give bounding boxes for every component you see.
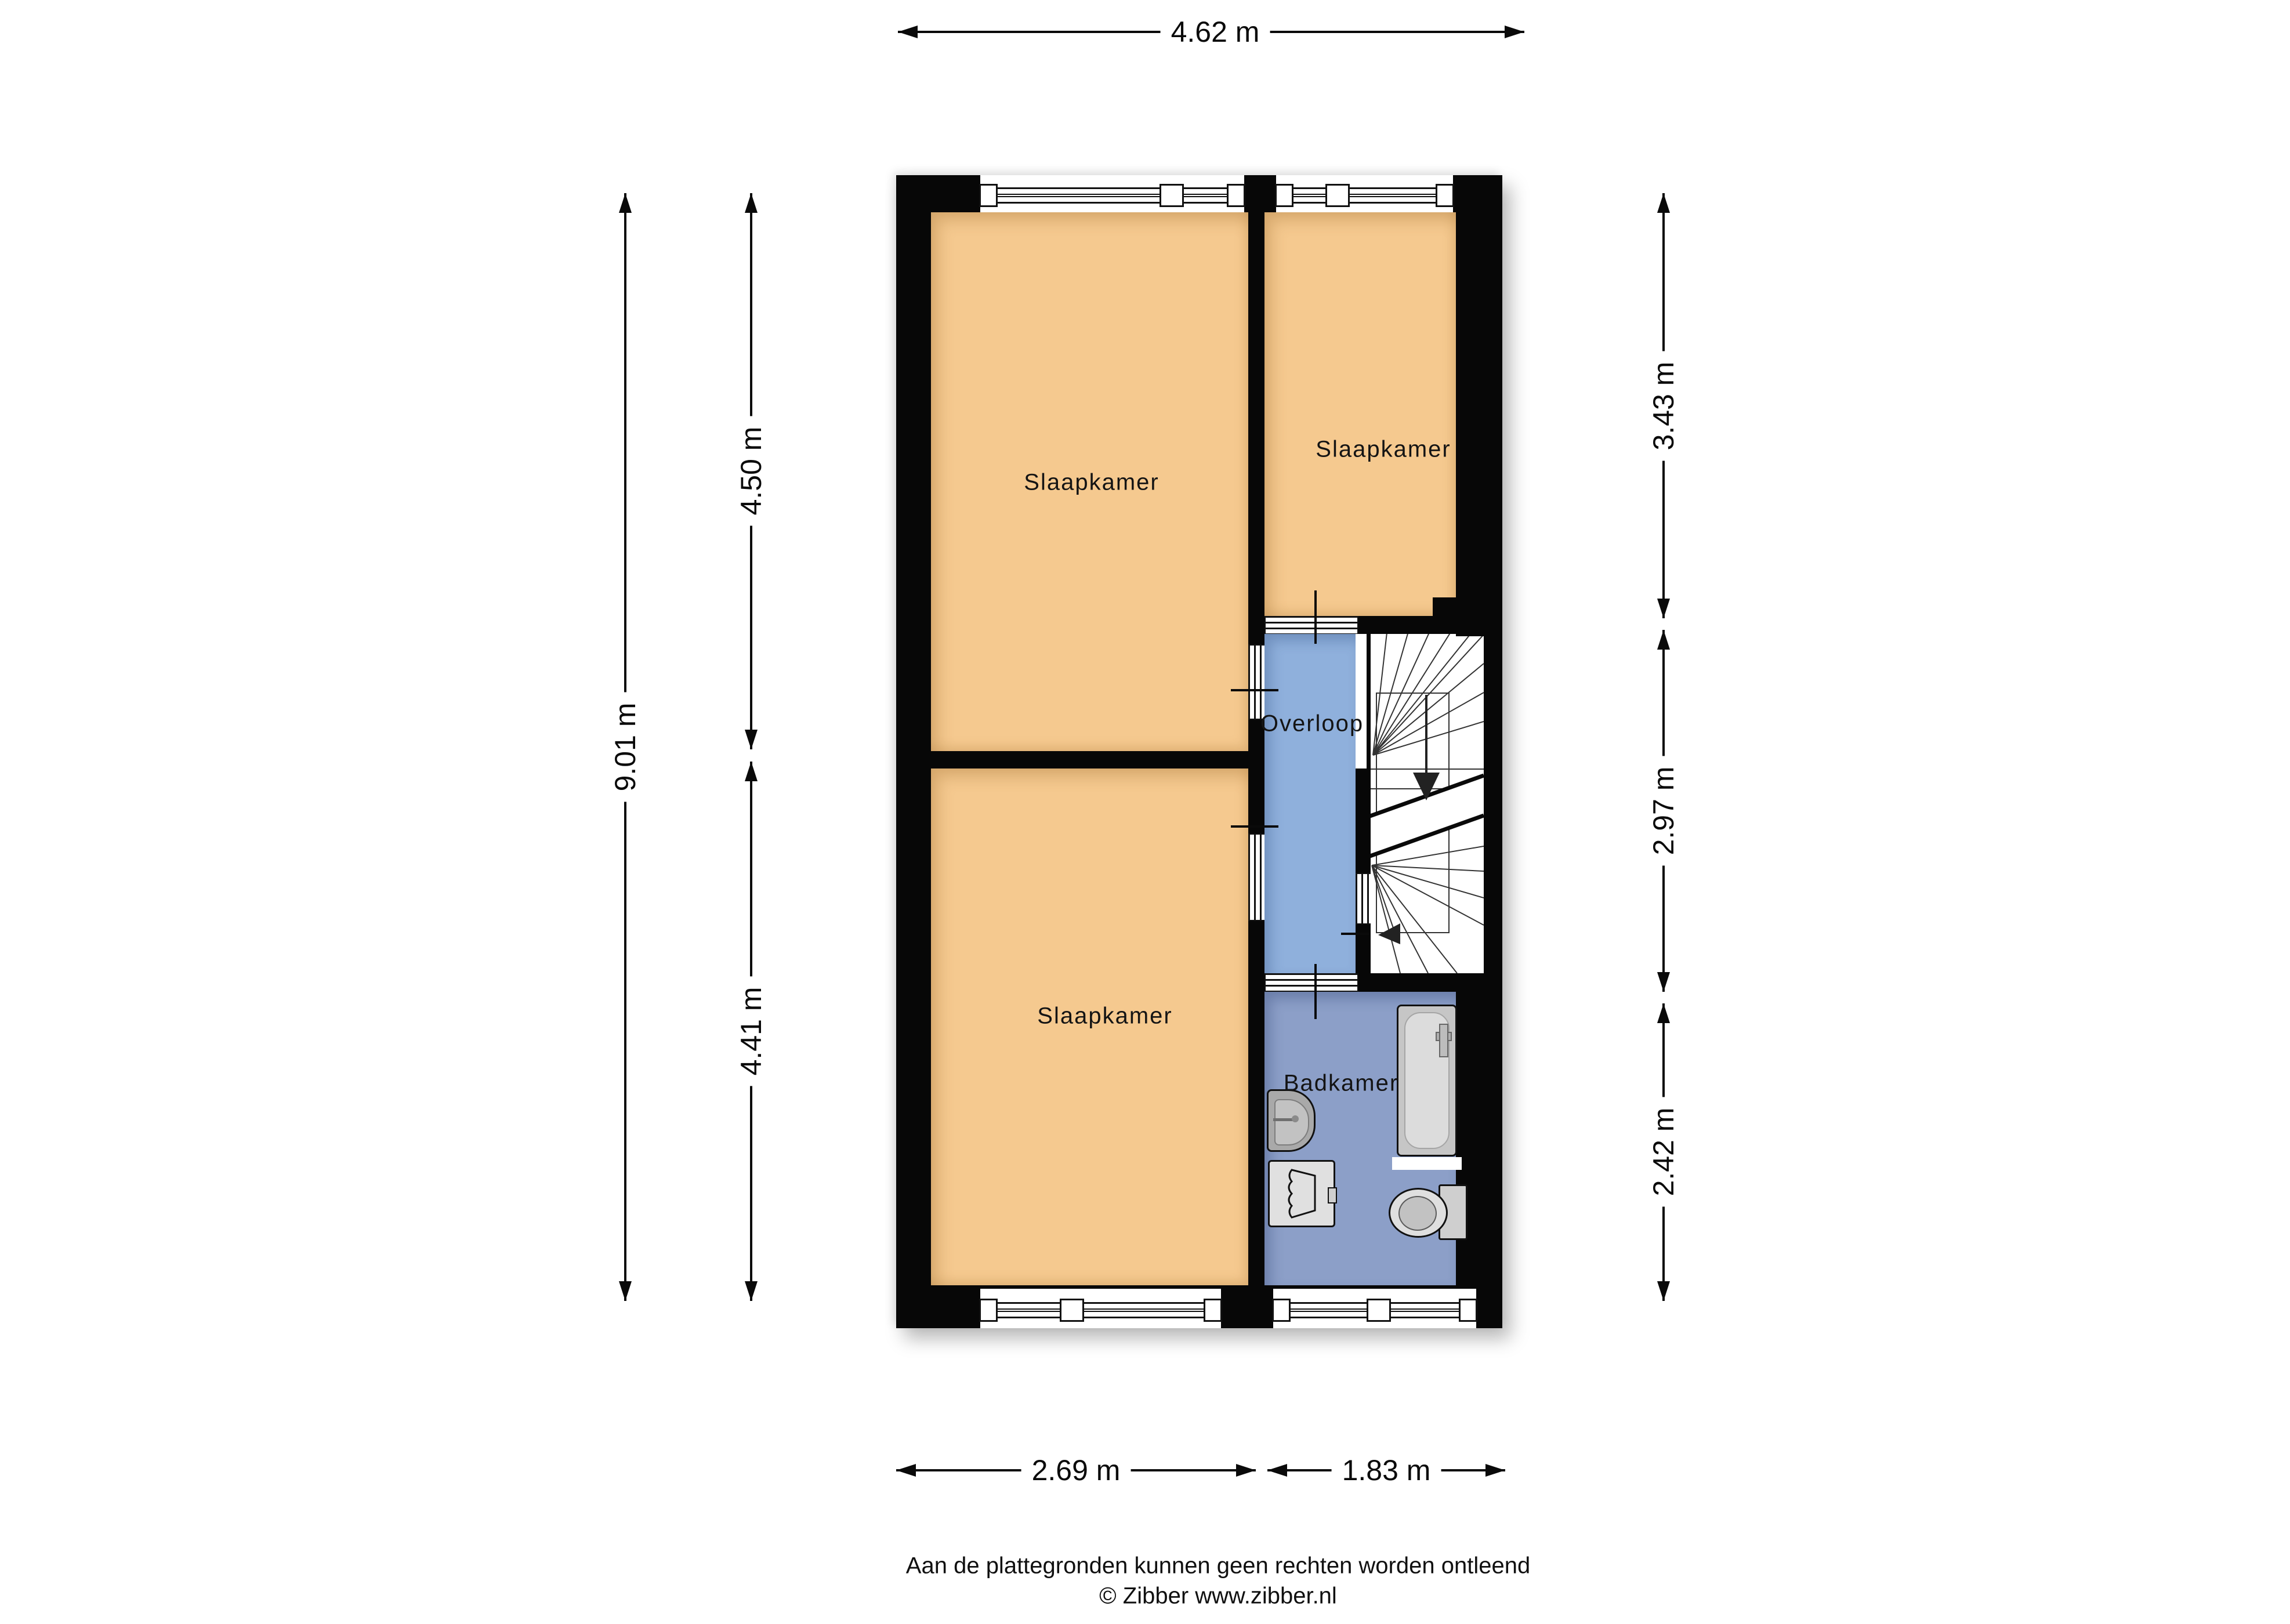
floorplan-canvas: Slaapkamer Slaapkamer Slaapkamer Overloo…: [0, 0, 2290, 1624]
wall-center-divider: [1248, 212, 1264, 1289]
room-label-badkamer: Badkamer: [1284, 1071, 1398, 1097]
wall-left: [896, 175, 931, 1328]
toilet-icon: [1389, 1188, 1448, 1238]
wall-right-top: [1456, 175, 1502, 636]
wall-bottom-corner-left: [896, 1289, 980, 1328]
dim-top-width: 4.62 m: [1161, 14, 1270, 50]
wall-overloop-stairs-upper: [1356, 768, 1371, 873]
dim-bottom-right: 1.83 m: [1332, 1452, 1441, 1488]
wall-top-pier: [1244, 175, 1276, 212]
window-icon: [1276, 175, 1453, 212]
dim-bottom-left: 2.69 m: [1021, 1452, 1131, 1488]
wall-overloop-stairs-lower: [1356, 922, 1371, 974]
door-tick-left-upper: [1231, 689, 1278, 691]
door-overloop-to-bottom-left-bedroom: [1248, 833, 1264, 921]
door-overloop-to-top-left-bedroom: [1248, 644, 1264, 720]
window-icon: [980, 1289, 1221, 1328]
room-label-slaapkamer-top-left: Slaapkamer: [1024, 470, 1159, 496]
dim-left-lower: 4.41 m: [733, 977, 769, 1086]
bathtub-icon: [1397, 1005, 1457, 1157]
door-overloop-to-badkamer: [1264, 973, 1358, 992]
door-tick-stairs: [1341, 933, 1370, 935]
room-label-slaapkamer-bottom-left: Slaapkamer: [1037, 1003, 1172, 1029]
room-label-slaapkamer-top-right: Slaapkamer: [1316, 437, 1451, 463]
dim-left-total: 9.01 m: [607, 693, 643, 802]
wall-bottom-pier: [1221, 1289, 1273, 1328]
door-tick-bottom: [1314, 964, 1317, 1019]
dim-left-upper: 4.50 m: [733, 416, 769, 526]
wall-top-corner-right: [1453, 175, 1502, 212]
staircase: [1370, 626, 1484, 974]
wall-between-left-bedrooms: [931, 751, 1248, 768]
dim-right-lower: 2.42 m: [1646, 1097, 1682, 1207]
wall-right-bottom: [1456, 973, 1502, 1328]
wall-right-stairs: [1484, 626, 1502, 974]
footer-copyright: © Zibber www.zibber.nl: [1099, 1583, 1337, 1609]
room-label-overloop: Overloop: [1260, 711, 1364, 737]
wall-step-block: [1433, 597, 1456, 617]
dim-right-upper: 3.43 m: [1646, 351, 1682, 461]
door-overloop-to-stairs: [1356, 873, 1371, 925]
wall-bottom-corner-right: [1476, 1289, 1502, 1328]
shower-icon: [1268, 1160, 1335, 1227]
room-floor-slaapkamer-top-right: [1264, 212, 1456, 616]
bathtub-rim: [1392, 1157, 1462, 1170]
wall-top-corner-left: [896, 175, 980, 212]
door-tick-top: [1314, 590, 1317, 644]
footer-disclaimer: Aan de plattegronden kunnen geen rechten…: [906, 1553, 1530, 1579]
wall-overloop-stairs-line: [1367, 626, 1371, 768]
window-icon: [1273, 1289, 1476, 1328]
dim-right-middle: 2.97 m: [1646, 756, 1682, 866]
sink-icon: [1267, 1089, 1316, 1152]
door-tick-left-lower: [1231, 825, 1278, 828]
window-icon: [980, 175, 1244, 212]
room-floor-overloop: [1264, 634, 1356, 973]
door-overloop-to-top-bedroom: [1264, 616, 1358, 634]
